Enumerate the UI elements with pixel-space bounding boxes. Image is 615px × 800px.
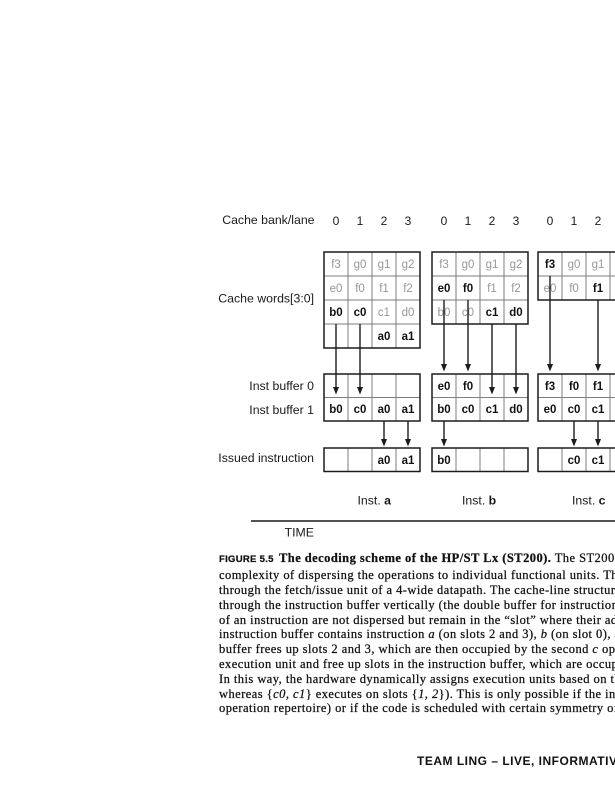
svg-text:Inst. a: Inst. a	[358, 494, 392, 508]
svg-text:1: 1	[357, 214, 364, 228]
svg-text:g2: g2	[510, 259, 523, 271]
svg-text:b0: b0	[437, 455, 450, 467]
svg-text:a0: a0	[378, 455, 391, 467]
svg-text:e0: e0	[544, 404, 557, 416]
svg-text:d0: d0	[509, 404, 522, 416]
svg-text:a0: a0	[378, 331, 391, 343]
svg-text:c1: c1	[378, 307, 390, 319]
svg-text:TIME: TIME	[285, 526, 314, 540]
svg-text:a1: a1	[402, 331, 415, 343]
svg-text:e0: e0	[438, 283, 451, 295]
svg-text:f0: f0	[569, 283, 579, 295]
svg-text:f1: f1	[593, 381, 604, 393]
svg-text:f0: f0	[355, 283, 365, 295]
svg-text:Issued instruction: Issued instruction	[218, 451, 314, 465]
svg-text:Cache bank/lane: Cache bank/lane	[222, 213, 314, 227]
svg-text:e0: e0	[330, 283, 343, 295]
svg-text:d0: d0	[402, 307, 415, 319]
svg-text:c1: c1	[486, 404, 499, 416]
svg-text:c0: c0	[354, 404, 367, 416]
svg-text:f1: f1	[593, 283, 604, 295]
svg-text:Inst. c: Inst. c	[572, 494, 606, 508]
svg-text:Inst buffer 0: Inst buffer 0	[249, 379, 314, 393]
svg-text:g1: g1	[378, 259, 391, 271]
svg-text:c1: c1	[486, 307, 499, 319]
svg-text:2: 2	[381, 214, 388, 228]
svg-text:Inst buffer 1: Inst buffer 1	[249, 403, 314, 417]
svg-text:Cache words[3:0]: Cache words[3:0]	[218, 292, 314, 306]
svg-text:e0: e0	[438, 381, 451, 393]
svg-text:0: 0	[333, 214, 340, 228]
svg-text:b0: b0	[437, 404, 450, 416]
svg-text:f2: f2	[403, 283, 413, 295]
svg-text:2: 2	[595, 214, 602, 228]
svg-text:a1: a1	[402, 455, 415, 467]
svg-text:f3: f3	[545, 381, 555, 393]
svg-text:1: 1	[465, 214, 472, 228]
svg-text:g0: g0	[462, 259, 475, 271]
svg-text:g0: g0	[568, 259, 581, 271]
svg-text:g1: g1	[592, 259, 605, 271]
svg-text:f1: f1	[487, 283, 497, 295]
svg-text:f2: f2	[511, 283, 521, 295]
svg-text:0: 0	[441, 214, 448, 228]
svg-text:2: 2	[489, 214, 496, 228]
svg-text:b0: b0	[329, 307, 342, 319]
svg-text:3: 3	[513, 214, 520, 228]
svg-text:b0: b0	[329, 404, 342, 416]
svg-text:c1: c1	[592, 455, 605, 467]
svg-text:0: 0	[547, 214, 554, 228]
svg-text:c0: c0	[354, 307, 367, 319]
svg-text:1: 1	[571, 214, 578, 228]
svg-text:a1: a1	[402, 404, 415, 416]
svg-text:c0: c0	[462, 404, 475, 416]
svg-text:c0: c0	[568, 455, 581, 467]
svg-text:c0: c0	[568, 404, 581, 416]
svg-text:f0: f0	[463, 381, 473, 393]
svg-text:f0: f0	[569, 381, 579, 393]
svg-text:f3: f3	[545, 259, 555, 271]
svg-text:g0: g0	[354, 259, 367, 271]
svg-text:3: 3	[405, 214, 412, 228]
svg-text:f3: f3	[439, 259, 449, 271]
svg-text:d0: d0	[509, 307, 522, 319]
svg-text:g2: g2	[402, 259, 415, 271]
svg-text:c1: c1	[592, 404, 605, 416]
svg-text:f1: f1	[379, 283, 389, 295]
svg-text:a0: a0	[378, 404, 391, 416]
svg-text:g1: g1	[486, 259, 499, 271]
svg-text:f0: f0	[463, 283, 473, 295]
svg-text:f3: f3	[331, 259, 341, 271]
svg-text:Inst. b: Inst. b	[462, 494, 496, 508]
